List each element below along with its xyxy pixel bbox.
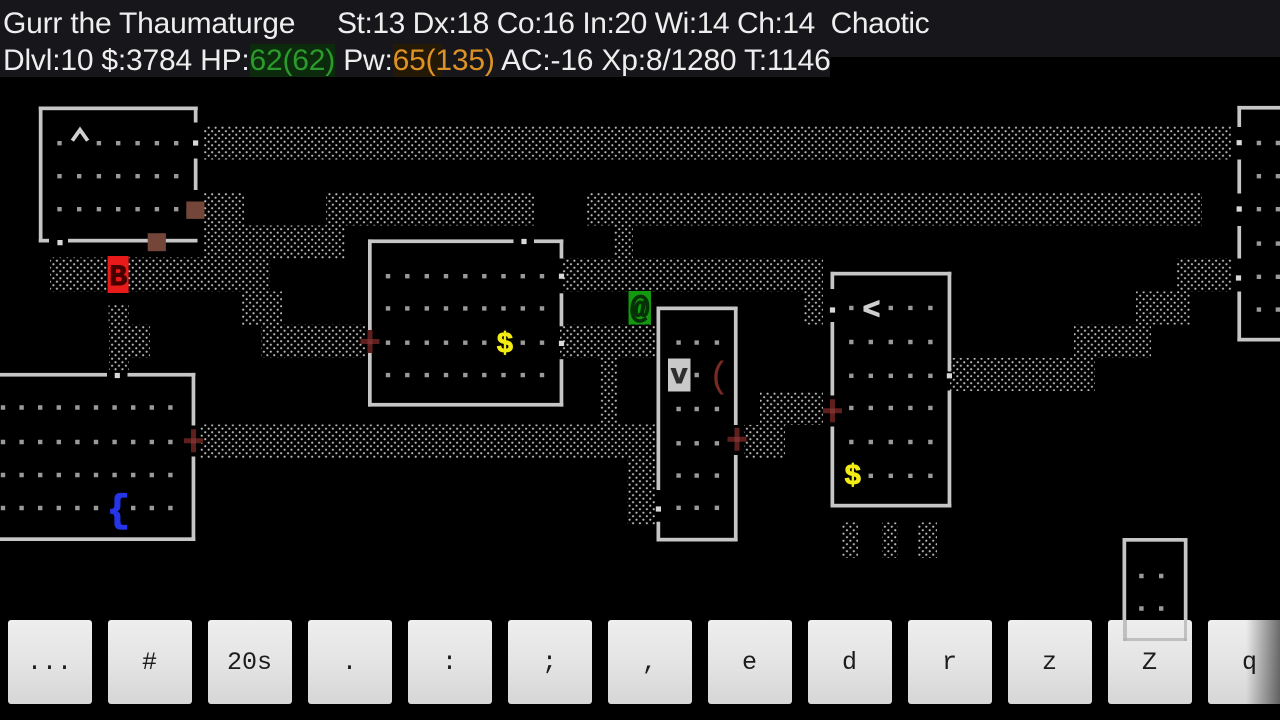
svg-text:(: ( bbox=[708, 357, 730, 398]
svg-text:<: < bbox=[862, 295, 880, 329]
svg-text:{: { bbox=[107, 490, 130, 533]
svg-text:v: v bbox=[671, 361, 688, 392]
svg-text:$: $ bbox=[496, 328, 513, 361]
svg-text:$: $ bbox=[844, 460, 861, 493]
svg-text:B: B bbox=[109, 261, 127, 295]
svg-text:@: @ bbox=[630, 293, 649, 328]
